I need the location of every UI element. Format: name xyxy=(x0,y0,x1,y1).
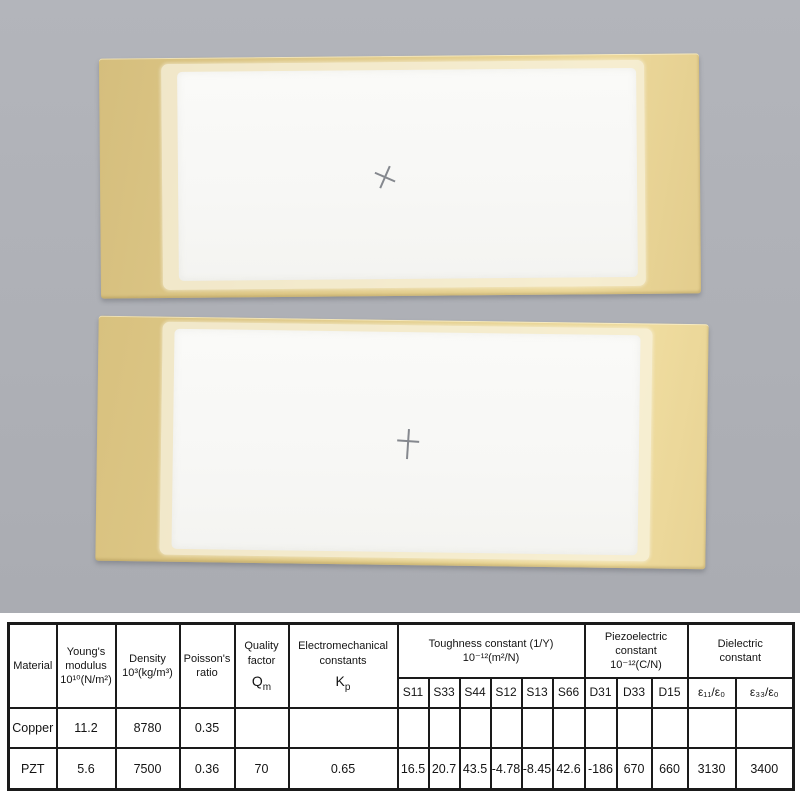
subheader-eps11: ε₁₁/ε₀ xyxy=(688,678,736,708)
table-cell: PZT xyxy=(9,748,57,789)
table-cell: 5.6 xyxy=(57,748,116,789)
header-material: Material xyxy=(9,624,57,709)
table-cell: -4.78 xyxy=(491,748,522,789)
table-cell: 8780 xyxy=(116,708,180,748)
table-cell: 43.5 xyxy=(460,748,491,789)
electromechanical-symbol: Kp xyxy=(290,674,397,693)
electromechanical-label: Electromechanical constants xyxy=(298,640,388,666)
table-cell: 70 xyxy=(235,748,289,789)
table-cell xyxy=(585,708,617,748)
table-cell xyxy=(235,708,289,748)
header-youngs-modulus: Young's modulus 10¹⁰(N/m²) xyxy=(57,624,116,709)
table-cell: 3400 xyxy=(736,748,794,789)
table-cell: 0.36 xyxy=(180,748,235,789)
header-quality-factor: Quality factor Qm xyxy=(235,624,289,709)
subheader-d31: D31 xyxy=(585,678,617,708)
subheader-d33: D33 xyxy=(617,678,652,708)
subheader-d15: D15 xyxy=(652,678,688,708)
table-cell xyxy=(522,708,553,748)
header-poissons-ratio: Poisson's ratio xyxy=(180,624,235,709)
header-dielectric-group: Dielectric constant xyxy=(688,624,794,679)
table-cell: 42.6 xyxy=(553,748,585,789)
quality-factor-label: Quality factor xyxy=(244,640,278,666)
header-piezoelectric-group: Piezoelectric constant 10⁻¹²(C/N) xyxy=(585,624,688,679)
table-cell: 20.7 xyxy=(429,748,460,789)
table-cell: 3130 xyxy=(688,748,736,789)
table-cell xyxy=(553,708,585,748)
pencil-cross-mark-bottom xyxy=(394,427,422,461)
subheader-s33: S33 xyxy=(429,678,460,708)
table-cell: 11.2 xyxy=(57,708,116,748)
quality-factor-symbol: Qm xyxy=(236,674,288,693)
table-cell: 0.35 xyxy=(180,708,235,748)
table-cell xyxy=(460,708,491,748)
table-cell xyxy=(398,708,429,748)
table-row-pzt: PZT 5.6 7500 0.36 70 0.65 16.5 20.7 43.5… xyxy=(9,748,794,789)
spec-table: Material Young's modulus 10¹⁰(N/m²) Dens… xyxy=(7,622,795,791)
subheader-s44: S44 xyxy=(460,678,491,708)
table-cell: -8.45 xyxy=(522,748,553,789)
table-cell: -186 xyxy=(585,748,617,789)
subheader-s13: S13 xyxy=(522,678,553,708)
table-cell xyxy=(736,708,794,748)
table-cell xyxy=(429,708,460,748)
header-toughness-group: Toughness constant (1/Y) 10⁻¹²(m²/N) xyxy=(398,624,585,679)
spec-table-panel: Material Young's modulus 10¹⁰(N/m²) Dens… xyxy=(0,613,800,800)
table-cell: 0.65 xyxy=(289,748,398,789)
table-cell: 16.5 xyxy=(398,748,429,789)
ceramic-pad-top xyxy=(177,68,638,281)
subheader-s11: S11 xyxy=(398,678,429,708)
brass-plate-bottom xyxy=(95,316,708,569)
table-cell: 7500 xyxy=(116,748,180,789)
table-cell xyxy=(289,708,398,748)
table-cell: 660 xyxy=(652,748,688,789)
table-cell xyxy=(617,708,652,748)
table-cell xyxy=(491,708,522,748)
table-row-copper: Copper 11.2 8780 0.35 xyxy=(9,708,794,748)
photo-backdrop xyxy=(0,0,800,613)
header-density: Density 10³(kg/m³) xyxy=(116,624,180,709)
table-cell xyxy=(652,708,688,748)
subheader-s12: S12 xyxy=(491,678,522,708)
table-cell xyxy=(688,708,736,748)
brass-plate-top xyxy=(99,53,701,298)
subheader-s66: S66 xyxy=(553,678,585,708)
subheader-eps33: ε₃₃/ε₀ xyxy=(736,678,794,708)
table-cell: Copper xyxy=(9,708,57,748)
header-electromechanical: Electromechanical constants Kp xyxy=(289,624,398,709)
table-cell: 670 xyxy=(617,748,652,789)
